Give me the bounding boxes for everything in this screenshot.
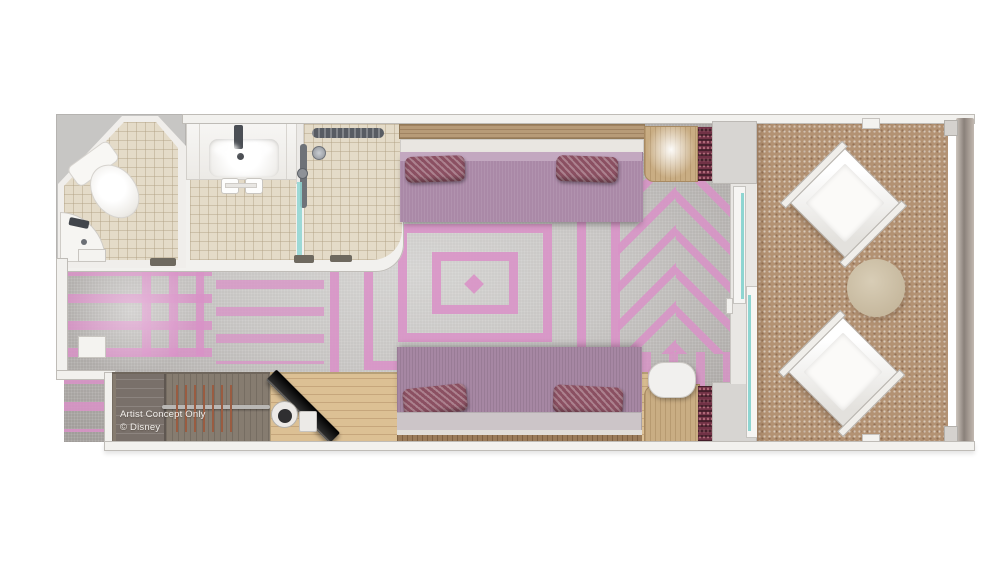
counter-light-glint [249,143,273,155]
bottom-wall [104,441,975,451]
sliding-glass-door-panel [733,186,746,304]
watermark-line1: Artist Concept Only [120,408,280,421]
glass-pane [741,193,744,299]
shower-glass-door [297,182,302,260]
shower-handle [297,168,308,179]
sliding-door-handle [726,298,733,314]
headboard-shelf [399,124,645,139]
tray [299,411,317,432]
entry-door-post [78,249,106,262]
headboard [400,139,644,153]
door-threshold [150,258,176,266]
top-wall [182,114,975,124]
towel-hooks [221,178,261,194]
shower-room-floor [304,124,402,260]
door-threshold [294,255,314,263]
left-wall [56,258,68,378]
window-wall-section [712,121,757,184]
watermark: Artist Concept Only © Disney [120,408,280,434]
balcony-table [847,259,905,317]
partition-support [862,118,880,129]
towel-bar [225,183,257,188]
pillow [405,155,466,183]
chair-cushion [803,332,882,411]
pillow [556,155,619,183]
railing-cap [944,120,958,136]
sofa-bed-seat [397,412,642,432]
nightstand-with-lamp [644,126,698,182]
entry-door-post [78,336,106,358]
carpet-pattern-mid-bars [216,280,324,364]
vanity-counter [186,120,300,180]
watermark-line2: © Disney [120,421,280,434]
desk-chair [648,362,696,398]
railing-cap [944,426,958,442]
curtain [698,127,712,181]
chair-cushion [805,163,884,242]
curtain [698,386,712,442]
carpet-chevron-right [676,168,734,354]
stateroom-floorplan: Artist Concept Only © Disney [0,0,1000,563]
door-threshold [330,255,352,262]
glass-pane [748,295,751,431]
counter-light-glint [213,143,239,156]
verandah-railing [956,118,974,446]
shower-head [312,146,326,160]
vanity-drain [237,153,244,160]
shower-drain [312,128,384,138]
corner-sink-drain [81,239,87,245]
